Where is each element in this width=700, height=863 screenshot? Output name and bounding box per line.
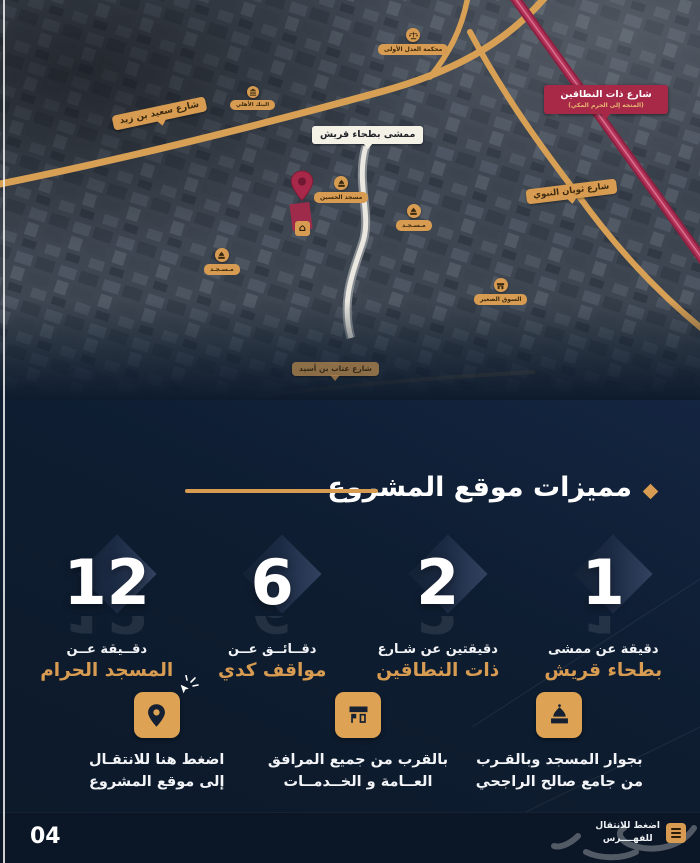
feature-line2: من جامع صالح الراجحي (459, 771, 660, 793)
poi-label: السوق الصغير (474, 294, 527, 305)
stat-road: 2 2 دقيقتين عن شـارع ذات النطاقين (355, 548, 521, 681)
map-label-street-atab: شارع عتاب بن أسيد (292, 362, 379, 376)
mosque-icon (407, 204, 421, 218)
footer-bar: 04 اضغط للانتقال للفهــــرس (0, 812, 700, 863)
feature-facilities: بالقرب من جميع المرافق العــامة و الخــد… (257, 692, 458, 794)
stat-value: 12 (24, 552, 190, 614)
feature-line2[interactable]: إلى موقع المشروع (56, 771, 257, 793)
stat-value: 1 (521, 552, 687, 614)
feature-location-link[interactable]: اضغط هنا للانتقـال إلى موقع المشروع (56, 692, 257, 794)
stat-value-reflection: 6 (190, 616, 356, 640)
features-row: بجوار المسجد وبالقـرب من جامع صالح الراج… (0, 692, 700, 794)
market-icon (494, 278, 508, 292)
stat-line2: بطحاء قريش (521, 660, 687, 681)
stat-line1: دقيقتين عن شـارع (355, 642, 521, 657)
map-poi-mosque-3: مـسـجـد (204, 248, 240, 275)
walkway-label-text: ممشى بطحاء قريش (320, 129, 415, 140)
red-road-label-box: شارع ذات النطاقين (المتجه إلى الحرم المك… (544, 85, 668, 114)
stat-line1: دقــيقة عــن (24, 642, 190, 657)
section-title-row: مميزات موقع المشروع (0, 472, 700, 512)
pointer-triangle (363, 143, 373, 149)
features-section: مميزات موقع المشروع 1 1 دقيقة عن ممشى بط… (0, 400, 700, 863)
street-label-box: شارع عتاب بن أسيد (292, 362, 379, 376)
pointer-triangle (601, 113, 611, 119)
stat-line2: المسجد الحرام (24, 660, 190, 681)
stat-line1: دقيقة عن ممشى (521, 642, 687, 657)
index-link-line2[interactable]: للفهــــرس (595, 833, 660, 846)
feature-line2: العــامة و الخــدمــات (257, 771, 458, 793)
feature-line1: بالقرب من جميع المرافق (257, 749, 458, 771)
poi-label: البنك الأهلي (230, 100, 275, 110)
location-map: ⌂ ممشى بطحاء قريش شارع ذات النطاقين (الم… (0, 0, 700, 400)
mosque-icon (334, 176, 348, 190)
feature-mosque: بجوار المسجد وبالقـرب من جامع صالح الراج… (459, 692, 660, 794)
project-house-icon: ⌂ (295, 221, 310, 236)
bank-icon (247, 86, 259, 98)
project-location-pin (289, 170, 315, 202)
stat-parking: 6 6 دقــائــق عــن مواقف كدي (190, 548, 356, 681)
index-link-text[interactable]: اضغط للانتقال للفهــــرس (595, 820, 660, 846)
stat-walkway: 1 1 دقيقة عن ممشى بطحاء قريش (521, 548, 687, 681)
map-poi-mosque-2: مـسـجـد (396, 204, 432, 231)
stat-line2: ذات النطاقين (355, 660, 521, 681)
map-poi-court: محكمة العدل الأولى (378, 28, 448, 55)
poi-label: مـسـجـد (396, 220, 432, 231)
section-title: مميزات موقع المشروع (327, 472, 632, 503)
left-edge-highlight (3, 0, 5, 863)
feature-line1: بجوار المسجد وبالقـرب (459, 749, 660, 771)
stat-line2: مواقف كدي (190, 660, 356, 681)
storefront-icon (335, 692, 381, 738)
index-link[interactable]: اضغط للانتقال للفهــــرس (595, 820, 686, 846)
diamond-bullet-icon (643, 484, 659, 500)
poi-label: محكمة العدل الأولى (378, 44, 448, 55)
stat-value-reflection: 12 (24, 616, 190, 640)
mosque-icon (215, 248, 229, 262)
title-accent-line (185, 489, 378, 493)
red-road-title: شارع ذات النطاقين (550, 89, 662, 101)
poi-label: مسجد الحسين (314, 192, 368, 203)
map-poi-mosque-hussein: مسجد الحسين (314, 176, 368, 203)
stat-line1: دقــائــق عــن (190, 642, 356, 657)
walkway-label-box: ممشى بطحاء قريش (312, 126, 423, 144)
page-number: 04 (30, 824, 61, 849)
poi-label: مـسـجـد (204, 264, 240, 275)
index-list-icon[interactable] (666, 823, 686, 843)
stats-row: 1 1 دقيقة عن ممشى بطحاء قريش 2 2 دقيقتين… (0, 548, 700, 681)
pointer-triangle (567, 197, 578, 204)
stat-value-reflection: 1 (521, 616, 687, 640)
street-label-text: شارع عتاب بن أسيد (299, 364, 372, 373)
location-pin-icon[interactable] (134, 692, 180, 738)
map-poi-bank: البنك الأهلي (230, 86, 275, 110)
brochure-page: ⌂ ممشى بطحاء قريش شارع ذات النطاقين (الم… (0, 0, 700, 863)
stat-haram: 12 12 دقــيقة عــن المسجد الحرام (24, 548, 190, 681)
stat-value-reflection: 2 (355, 616, 521, 640)
map-poi-market: السوق الصغير (474, 278, 527, 305)
stat-value: 6 (190, 552, 356, 614)
stat-value: 2 (355, 552, 521, 614)
pointer-triangle (330, 375, 340, 381)
feature-line1[interactable]: اضغط هنا للانتقـال (56, 749, 257, 771)
red-road-subtitle: (المتجه إلى الحرم المكي) (550, 102, 662, 109)
map-label-red-road: شارع ذات النطاقين (المتجه إلى الحرم المك… (544, 85, 668, 114)
click-cursor-icon (174, 675, 200, 699)
index-link-line1[interactable]: اضغط للانتقال (595, 820, 660, 833)
scales-icon (406, 28, 420, 42)
map-label-walkway: ممشى بطحاء قريش (312, 126, 423, 144)
mosque-icon (536, 692, 582, 738)
